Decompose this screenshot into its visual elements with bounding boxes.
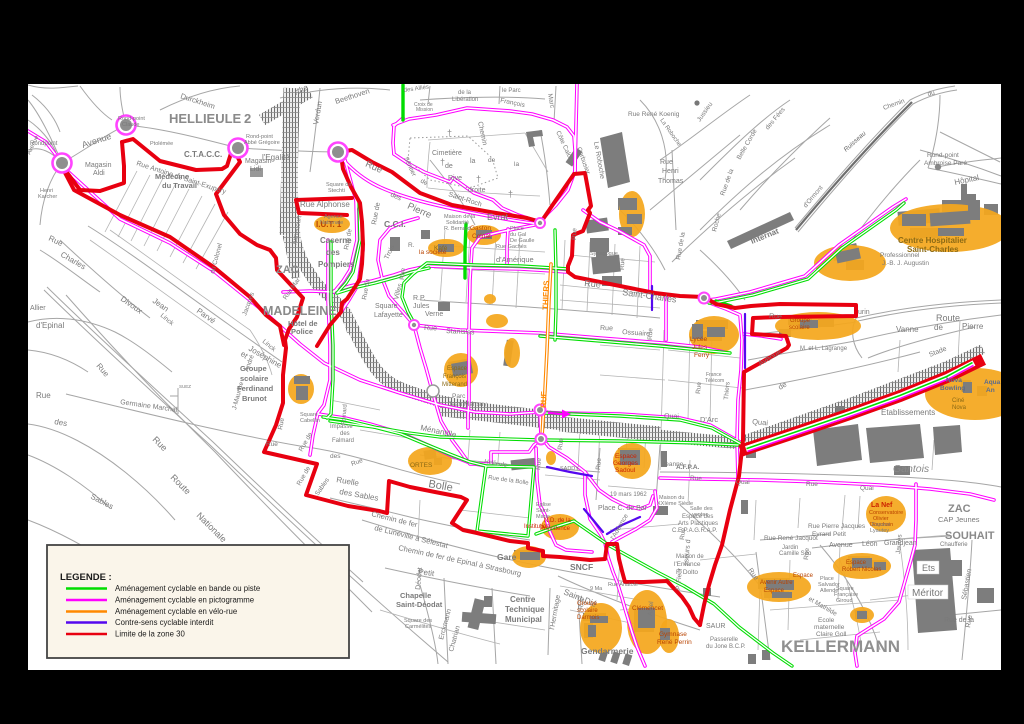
svg-text:Ecole: Ecole [818, 617, 835, 624]
svg-text:Parc: Parc [452, 393, 466, 400]
svg-text:Etablissements: Etablissements [881, 408, 935, 417]
svg-text:Jeanne: Jeanne [662, 461, 684, 468]
svg-text:Espace: Espace [764, 588, 785, 594]
svg-text:Rue Anatole: Rue Anatole [608, 582, 638, 588]
svg-text:Technique: Technique [505, 605, 545, 614]
svg-text:des: des [340, 431, 350, 437]
svg-text:LEGENDE :: LEGENDE : [60, 572, 112, 583]
svg-text:R. Bernard: R. Bernard [444, 226, 471, 232]
svg-text:C.T.A.C.C.: C.T.A.C.C. [184, 150, 222, 159]
svg-text:ORTES: ORTES [410, 462, 433, 469]
svg-text:Brunot: Brunot [242, 394, 267, 403]
svg-text:Pierre: Pierre [962, 322, 984, 331]
svg-text:Route: Route [936, 313, 960, 323]
svg-text:Passerelle: Passerelle [710, 637, 739, 643]
svg-text:SNCF: SNCF [570, 562, 593, 572]
svg-text:ventes: ventes [692, 512, 708, 518]
svg-text:THIERS: THIERS [541, 280, 551, 310]
svg-text:des: des [330, 453, 341, 460]
svg-text:R.: R. [408, 242, 415, 249]
svg-text:Henri: Henri [662, 168, 679, 175]
svg-text:Nationale: Nationale [320, 220, 343, 226]
svg-text:Rue: Rue [660, 159, 673, 166]
svg-text:Jules: Jules [413, 303, 430, 310]
svg-text:Rue: Rue [690, 475, 703, 482]
svg-text:Rond-point: Rond-point [927, 152, 959, 159]
svg-text:Quai: Quai [860, 485, 874, 492]
svg-text:Synagogue: Synagogue [590, 251, 618, 257]
svg-text:Allier: Allier [30, 305, 46, 312]
svg-text:La Nef: La Nef [871, 502, 893, 509]
svg-text:Rue: Rue [571, 228, 578, 241]
svg-text:Rue Alphonse: Rue Alphonse [300, 200, 350, 209]
svg-text:Rive: Rive [448, 175, 462, 182]
svg-text:Ambroise Paré: Ambroise Paré [924, 160, 967, 167]
svg-text:Jean Mansuy: Jean Mansuy [448, 401, 487, 408]
svg-text:de: de [934, 323, 943, 332]
svg-text:Espace: Espace [615, 453, 637, 460]
svg-text:Falmard: Falmard [332, 438, 354, 444]
svg-text:Ets: Ets [922, 563, 936, 573]
svg-text:Lycée: Lycée [690, 336, 707, 343]
svg-text:Centre Hospitalier: Centre Hospitalier [898, 236, 967, 245]
svg-text:Centre: Centre [510, 595, 536, 604]
svg-text:Quai: Quai [736, 479, 750, 486]
svg-text:RUE: RUE [539, 390, 549, 408]
svg-text:Rue: Rue [557, 437, 565, 450]
svg-text:Rue: Rue [619, 258, 626, 271]
svg-text:François: François [443, 374, 466, 380]
svg-text:Rue: Rue [600, 325, 613, 332]
svg-text:Evrard Petit: Evrard Petit [812, 531, 846, 538]
svg-text:Robert Nicolas: Robert Nicolas [842, 567, 881, 573]
svg-text:2: 2 [244, 111, 251, 126]
svg-text:Saint-Déodat: Saint-Déodat [396, 600, 443, 609]
svg-text:la: la [514, 161, 519, 168]
svg-text:Magasin: Magasin [85, 162, 112, 169]
svg-text:Place C. de Bar: Place C. de Bar [598, 505, 648, 512]
svg-text:Télécom: Télécom [705, 378, 724, 384]
svg-text:ZAC: ZAC [276, 264, 299, 276]
svg-text:†: † [476, 174, 481, 184]
svg-text:Rue: Rue [399, 267, 407, 280]
svg-text:Police: Police [291, 327, 313, 336]
svg-text:Bowling: Bowling [940, 385, 965, 392]
svg-text:Professionnel: Professionnel [880, 252, 920, 259]
svg-text:Aqua: Aqua [984, 379, 1001, 386]
svg-text:Aménagement cyclable en vélo-r: Aménagement cyclable en vélo-rue [115, 607, 237, 616]
svg-text:Mitterand: Mitterand [442, 382, 467, 388]
svg-text:scolaire: scolaire [577, 608, 598, 614]
svg-text:la: la [470, 158, 476, 165]
svg-text:†: † [508, 189, 513, 199]
svg-text:SAUR: SAUR [706, 623, 725, 630]
svg-text:Limite de la zone 30: Limite de la zone 30 [115, 630, 185, 639]
svg-text:Ptolémée: Ptolémée [150, 141, 173, 147]
svg-text:Gantois: Gantois [893, 463, 930, 475]
svg-text:Municipal: Municipal [505, 615, 542, 624]
svg-text:Chaufferie: Chaufferie [940, 542, 968, 548]
svg-text:Pompiers: Pompiers [318, 260, 355, 269]
svg-text:Evrat: Evrat [487, 212, 509, 222]
svg-text:Ainel: Ainel [647, 601, 655, 617]
svg-text:C.C.I.: C.C.I. [384, 219, 406, 229]
svg-text:d'Amérique: d'Amérique [496, 255, 534, 264]
svg-text:Rue: Rue [769, 313, 782, 321]
svg-text:Claire Goll: Claire Goll [816, 631, 847, 638]
svg-text:Mission: Mission [416, 107, 433, 113]
svg-text:Providence: Providence [540, 526, 571, 532]
svg-text:Vanne: Vanne [896, 325, 919, 334]
svg-text:Rue: Rue [266, 441, 278, 448]
svg-text:Avenue: Avenue [829, 542, 853, 549]
svg-text:Verne: Verne [425, 311, 443, 318]
svg-text:CAP Jeunes: CAP Jeunes [938, 515, 980, 524]
svg-text:le Parc: le Parc [502, 88, 521, 94]
svg-text:Stechti: Stechti [328, 188, 345, 194]
svg-text:Rue: Rue [806, 481, 818, 488]
svg-text:Lyautey: Lyautey [870, 528, 889, 534]
svg-text:Espace: Espace [447, 366, 468, 372]
svg-text:Quai: Quai [664, 413, 679, 421]
svg-text:Aménagement cyclable en bande: Aménagement cyclable en bande ou piste [115, 584, 260, 593]
svg-text:Colnat: Colnat [472, 233, 491, 240]
svg-text:Ferry: Ferry [694, 352, 710, 359]
svg-text:Rue de la: Rue de la [944, 617, 974, 624]
svg-text:Gare: Gare [497, 552, 517, 562]
svg-text:Contre-sens cyclable interdit: Contre-sens cyclable interdit [115, 618, 214, 627]
svg-text:Espace: Espace [846, 560, 867, 566]
svg-text:Thomas: Thomas [658, 178, 684, 185]
svg-text:Quai: Quai [752, 417, 769, 427]
svg-text:SUEZ: SUEZ [179, 384, 191, 389]
svg-text:Avenir Autre: Avenir Autre [760, 580, 793, 586]
svg-text:Rue: Rue [424, 325, 437, 332]
svg-text:Aldi: Aldi [93, 170, 105, 177]
svg-text:Georges: Georges [613, 460, 639, 467]
svg-text:Ciné: Ciné [952, 398, 965, 404]
svg-text:Carmélites: Carmélites [405, 624, 432, 630]
svg-text:Lidl: Lidl [250, 166, 261, 173]
svg-text:Rue: Rue [803, 547, 811, 560]
svg-text:Sadoul: Sadoul [615, 467, 636, 474]
svg-text:Nova: Nova [946, 377, 962, 384]
svg-text:Cabellin: Cabellin [300, 418, 320, 424]
svg-text:Méritor: Méritor [912, 588, 944, 599]
svg-text:de: de [445, 163, 453, 170]
svg-text:l'Egalité: l'Egalité [262, 153, 290, 162]
svg-text:†: † [447, 128, 452, 138]
svg-text:d'Epinal: d'Epinal [36, 321, 64, 330]
svg-text:Rue: Rue [595, 457, 603, 470]
svg-text:Lafayette: Lafayette [374, 312, 403, 319]
svg-text:SOUHAIT: SOUHAIT [945, 530, 995, 542]
svg-text:Libération: Libération [452, 97, 478, 103]
svg-text:des: des [326, 248, 340, 257]
svg-text:Arts Plastiques: Arts Plastiques [678, 521, 718, 527]
svg-text:scolaire: scolaire [240, 374, 268, 383]
svg-text:SADDY: SADDY [560, 466, 579, 472]
svg-text:Rue: Rue [584, 278, 601, 290]
svg-text:Kafé: Kafé [434, 245, 448, 252]
svg-text:Rondpoint: Rondpoint [30, 141, 58, 147]
svg-text:HELLIEULE: HELLIEULE [169, 111, 242, 126]
svg-text:Gendarmerie: Gendarmerie [581, 646, 634, 656]
svg-text:René Perrin: René Perrin [657, 639, 692, 646]
svg-text:Cimetière: Cimetière [432, 150, 462, 157]
svg-text:Allende: Allende [820, 588, 838, 594]
svg-text:Impasse: Impasse [330, 424, 353, 430]
svg-text:Groupe: Groupe [577, 601, 598, 607]
svg-text:Jules: Jules [692, 344, 708, 351]
svg-text:Léon: Léon [862, 541, 878, 548]
svg-text:ZAC: ZAC [948, 503, 971, 515]
svg-text:Karcher: Karcher [38, 194, 57, 200]
svg-text:19 mars 1962: 19 mars 1962 [610, 492, 647, 498]
svg-text:Marie: Marie [536, 514, 550, 520]
svg-text:Giroud: Giroud [836, 598, 853, 604]
svg-text:KELLERMANN: KELLERMANN [781, 637, 900, 656]
svg-text:Rue Pierre Jacques: Rue Pierre Jacques [808, 523, 866, 530]
svg-text:Claude: Claude [122, 122, 139, 128]
svg-text:Gaston: Gaston [470, 225, 491, 232]
svg-text:M. et L. Lagrange: M. et L. Lagrange [800, 346, 848, 352]
svg-text:scolaire: scolaire [789, 325, 810, 331]
svg-text:Groupe: Groupe [790, 318, 811, 324]
svg-text:Rue: Rue [36, 391, 51, 400]
svg-text:9 Ma: 9 Ma [590, 586, 603, 592]
svg-text:XXIème Siècle: XXIème Siècle [657, 501, 693, 507]
svg-text:de: de [488, 157, 496, 164]
svg-text:An: An [986, 387, 995, 394]
svg-text:Rue René Koenig: Rue René Koenig [628, 111, 680, 118]
svg-text:Aménagement cyclable en pictog: Aménagement cyclable en pictogramme [115, 596, 254, 605]
svg-text:Chapelle: Chapelle [400, 591, 431, 600]
svg-text:maternelle: maternelle [814, 624, 845, 631]
svg-text:Espace: Espace [793, 573, 814, 579]
svg-text:J.-B. J. Augustin: J.-B. J. Augustin [882, 260, 929, 267]
svg-text:Rue René Jacquot: Rue René Jacquot [764, 535, 818, 542]
svg-text:droite: droite [468, 187, 486, 194]
svg-text:MADELEINE: MADELEINE [263, 304, 337, 318]
svg-text:Abbé Grégoire: Abbé Grégoire [244, 140, 280, 146]
svg-text:Square: Square [375, 303, 398, 310]
svg-text:urin: urin [858, 309, 870, 316]
svg-text:D'Arc: D'Arc [700, 415, 718, 424]
svg-text:Gymnase: Gymnase [659, 631, 687, 638]
svg-text:Rue: Rue [695, 381, 703, 394]
svg-text:de la: de la [458, 90, 472, 96]
svg-text:Rue Gachés: Rue Gachés [496, 244, 527, 250]
svg-text:Rue: Rue [679, 527, 687, 540]
svg-text:du Jone B.C.P.: du Jone B.C.P. [706, 644, 746, 650]
svg-text:R.P.: R.P. [413, 295, 426, 302]
svg-text:Nova: Nova [952, 405, 967, 411]
svg-text:Darmois: Darmois [577, 615, 599, 621]
svg-text:Rue: Rue [535, 457, 543, 470]
